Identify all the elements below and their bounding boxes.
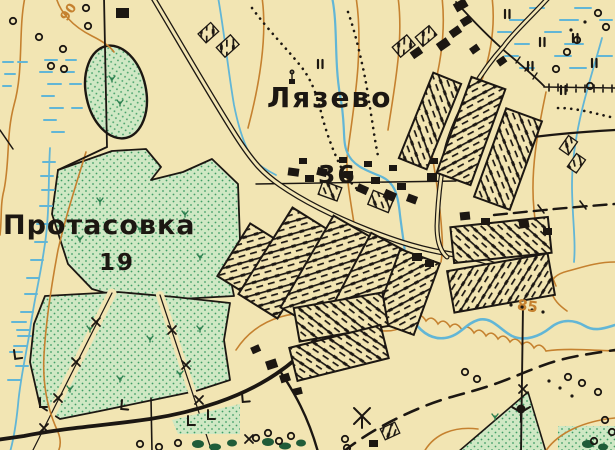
dot-marks	[509, 20, 586, 397]
map-canvas: Лязево 36 Протасовка 19 85 90	[0, 0, 615, 450]
pond	[77, 40, 155, 144]
meadow-triangle-se	[458, 392, 546, 450]
meadow-bottom-strip	[172, 404, 240, 434]
footpath-dotted	[558, 108, 615, 118]
village-label-protasovka: Протасовка	[3, 212, 196, 239]
contour-elevation-label-85: 85	[516, 298, 539, 316]
marsh	[3, 60, 82, 132]
households-label-lyazevo: 36	[318, 162, 357, 187]
windmill-icon	[354, 408, 370, 428]
stream	[572, 38, 602, 262]
track	[280, 371, 318, 450]
river	[410, 315, 615, 338]
fence-line	[544, 84, 615, 92]
households-label-protasovka: 19	[99, 252, 135, 275]
village-label-lyazevo: Лязево	[267, 84, 392, 112]
